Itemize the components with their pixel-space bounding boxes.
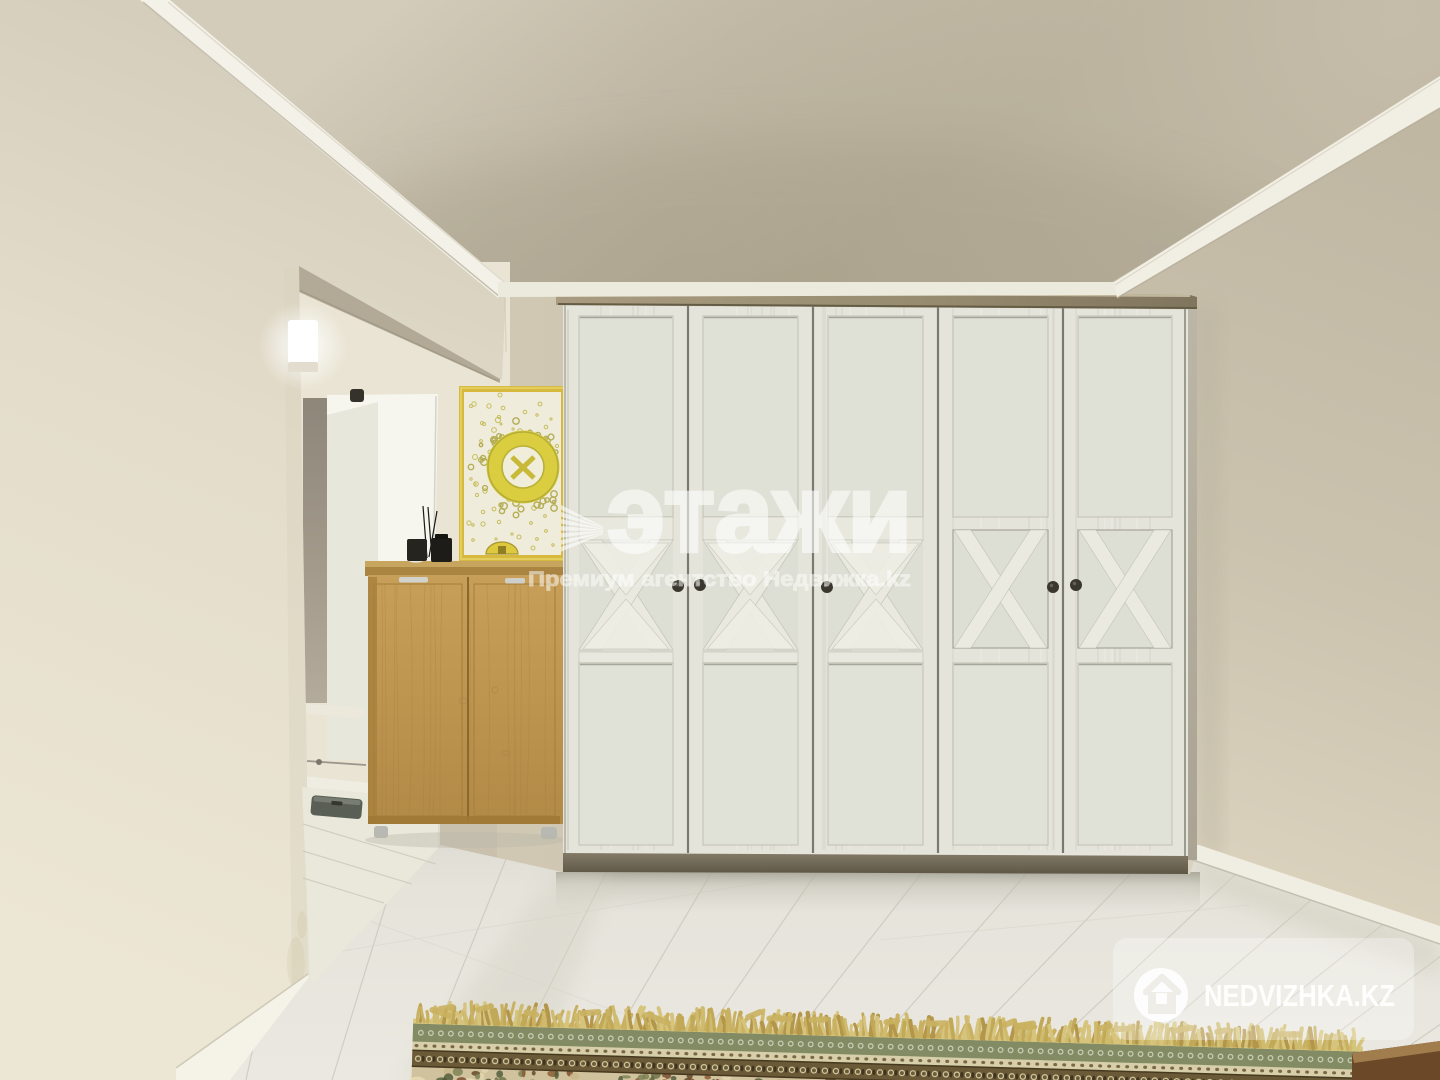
- svg-text:NEDVIZHKA.KZ: NEDVIZHKA.KZ: [1204, 978, 1395, 1013]
- svg-text:этажи: этажи: [607, 452, 912, 575]
- svg-text:Премиум агентство Недвижка.kz: Премиум агентство Недвижка.kz: [528, 568, 911, 591]
